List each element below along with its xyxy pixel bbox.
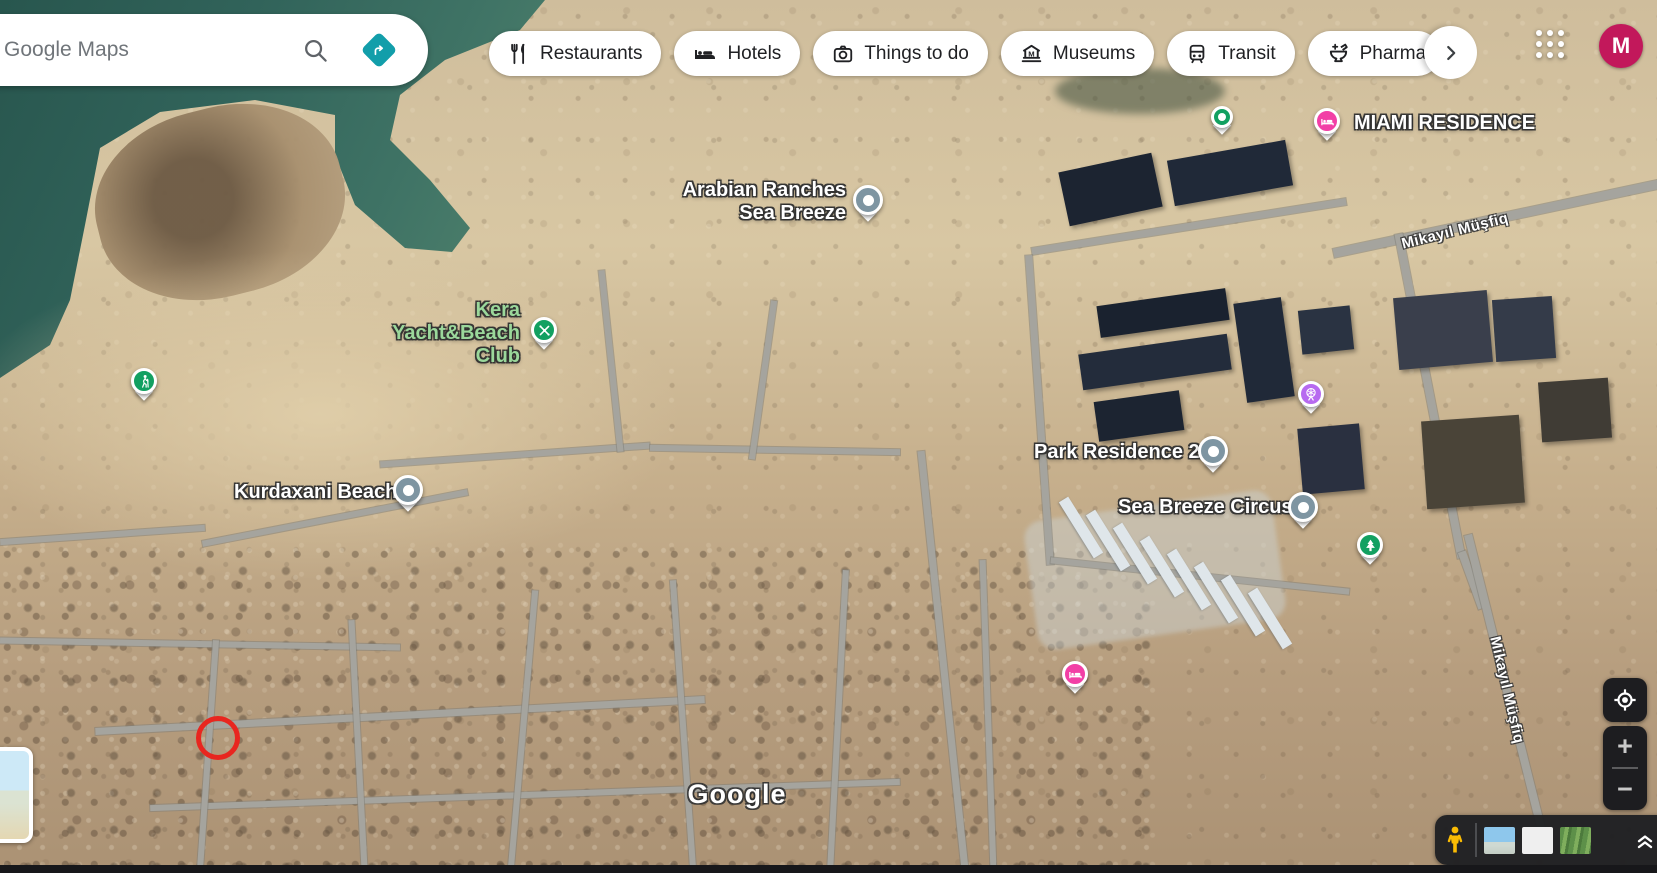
collapse-panel-button[interactable] bbox=[1627, 822, 1657, 858]
place-dot-icon bbox=[1208, 446, 1219, 457]
hotel-icon bbox=[693, 42, 717, 66]
imagery-thumbnail-field[interactable] bbox=[1522, 827, 1553, 854]
place-label-miami-residence[interactable]: MIAMI RESIDENCE bbox=[1354, 112, 1535, 135]
restaurant-icon bbox=[508, 43, 530, 65]
hiker-icon bbox=[137, 374, 152, 389]
hotel-bed-marker[interactable] bbox=[1314, 108, 1340, 134]
paddle-marker[interactable] bbox=[531, 317, 557, 343]
zoom-in-button[interactable]: + bbox=[1603, 726, 1647, 767]
pin-circle bbox=[1211, 106, 1233, 128]
place-label-sea-breeze-circus[interactable]: Sea Breeze Circus bbox=[1118, 496, 1293, 519]
place-label-arabian-ranches-sea-breeze[interactable]: Arabian RanchesSea Breeze bbox=[683, 179, 846, 225]
pin-circle bbox=[1357, 532, 1383, 558]
chip-hotels[interactable]: Hotels bbox=[674, 31, 800, 76]
paddle-icon bbox=[537, 323, 552, 338]
chip-pharmacies[interactable]: Pharmacies bbox=[1308, 31, 1440, 76]
map-canvas[interactable]: Google Arabian RanchesSea BreezeKeraYach… bbox=[0, 0, 1657, 873]
hotel-bed-icon bbox=[1320, 114, 1335, 129]
tree-marker[interactable] bbox=[1357, 532, 1383, 558]
place-dot-marker[interactable] bbox=[1288, 492, 1318, 522]
screen-bottom-edge bbox=[0, 865, 1657, 873]
camera-icon bbox=[832, 43, 854, 65]
chip-transit[interactable]: Transit bbox=[1167, 31, 1294, 76]
search-input[interactable]: Google Maps bbox=[4, 14, 129, 86]
place-dot-marker[interactable] bbox=[853, 185, 883, 215]
account-avatar[interactable]: M bbox=[1599, 24, 1643, 68]
place-dot-icon bbox=[863, 195, 874, 206]
search-icon[interactable] bbox=[296, 31, 334, 69]
transit-icon bbox=[1186, 43, 1208, 65]
pegman-icon[interactable] bbox=[1435, 815, 1475, 865]
google-watermark: Google bbox=[0, 779, 1474, 810]
place-dot-marker[interactable] bbox=[1211, 106, 1233, 128]
pharmacy-icon bbox=[1327, 42, 1350, 65]
minimap-partial-thumbnail[interactable] bbox=[0, 747, 33, 843]
panel-divider bbox=[1475, 823, 1477, 857]
building-block bbox=[1393, 290, 1493, 370]
pin-circle bbox=[1198, 436, 1228, 466]
place-dot-icon bbox=[403, 485, 414, 496]
place-dot-icon bbox=[1218, 113, 1226, 121]
place-dot-marker[interactable] bbox=[393, 475, 423, 505]
google-apps-grid-icon[interactable] bbox=[1534, 30, 1566, 62]
chip-label: Hotels bbox=[727, 43, 781, 65]
place-label-kurdaxani-beach[interactable]: Kurdaxani Beach bbox=[234, 481, 397, 504]
directions-diamond bbox=[361, 32, 398, 69]
museum-icon: M bbox=[1020, 42, 1043, 65]
pin-circle bbox=[853, 185, 883, 215]
imagery-thumbnail-vegetation[interactable] bbox=[1560, 827, 1591, 854]
search-bar[interactable]: Google Maps bbox=[0, 14, 428, 86]
double-chevron-up-icon bbox=[1633, 828, 1657, 852]
tree-icon bbox=[1363, 538, 1378, 553]
pin-circle bbox=[1062, 661, 1088, 687]
building-block bbox=[1538, 378, 1612, 443]
place-dot-icon bbox=[1298, 502, 1309, 513]
chip-restaurants[interactable]: Restaurants bbox=[489, 31, 661, 76]
zoom-control: + − bbox=[1603, 726, 1647, 810]
building-block bbox=[1297, 423, 1365, 494]
pin-circle bbox=[1288, 492, 1318, 522]
hotel-bed-icon bbox=[1068, 667, 1083, 682]
chip-label: Things to do bbox=[864, 43, 969, 65]
hiker-marker[interactable] bbox=[131, 368, 157, 394]
chip-label: Museums bbox=[1053, 43, 1135, 65]
my-location-button[interactable] bbox=[1603, 678, 1647, 722]
imagery-panel bbox=[1435, 815, 1657, 865]
pin-circle bbox=[393, 475, 423, 505]
my-location-icon bbox=[1612, 687, 1638, 713]
google-maps-window: Google Arabian RanchesSea BreezeKeraYach… bbox=[0, 0, 1657, 873]
building-block bbox=[1421, 415, 1525, 510]
building-block bbox=[1298, 305, 1354, 354]
chip-label: Restaurants bbox=[540, 43, 642, 65]
chip-things-to-do[interactable]: Things to do bbox=[813, 31, 988, 76]
svg-text:M: M bbox=[1028, 50, 1034, 59]
chip-label: Transit bbox=[1218, 43, 1275, 65]
chip-museums[interactable]: MMuseums bbox=[1001, 31, 1154, 76]
pin-circle bbox=[131, 368, 157, 394]
category-chips: RestaurantsHotelsThings to doMMuseumsTra… bbox=[489, 31, 1440, 76]
place-label-kera-yacht-beach-club[interactable]: KeraYacht&BeachClub bbox=[392, 299, 520, 368]
place-dot-marker[interactable] bbox=[1198, 436, 1228, 466]
hotel-bed-marker[interactable] bbox=[1062, 661, 1088, 687]
ferris-wheel-icon bbox=[1303, 386, 1319, 402]
pin-circle bbox=[1298, 381, 1324, 407]
imagery-thumbnail-sea[interactable] bbox=[1484, 827, 1515, 854]
annotation-red-circle bbox=[196, 716, 240, 760]
chevron-right-icon bbox=[1440, 42, 1462, 64]
zoom-out-button[interactable]: − bbox=[1603, 769, 1647, 810]
building-block bbox=[1492, 296, 1556, 362]
pin-circle bbox=[531, 317, 557, 343]
ferris-wheel-marker[interactable] bbox=[1298, 381, 1324, 407]
pin-circle bbox=[1314, 108, 1340, 134]
more-categories-button[interactable] bbox=[1424, 26, 1477, 79]
place-label-park-residence-2[interactable]: Park Residence 2 bbox=[1034, 441, 1200, 464]
directions-icon[interactable] bbox=[362, 33, 396, 67]
